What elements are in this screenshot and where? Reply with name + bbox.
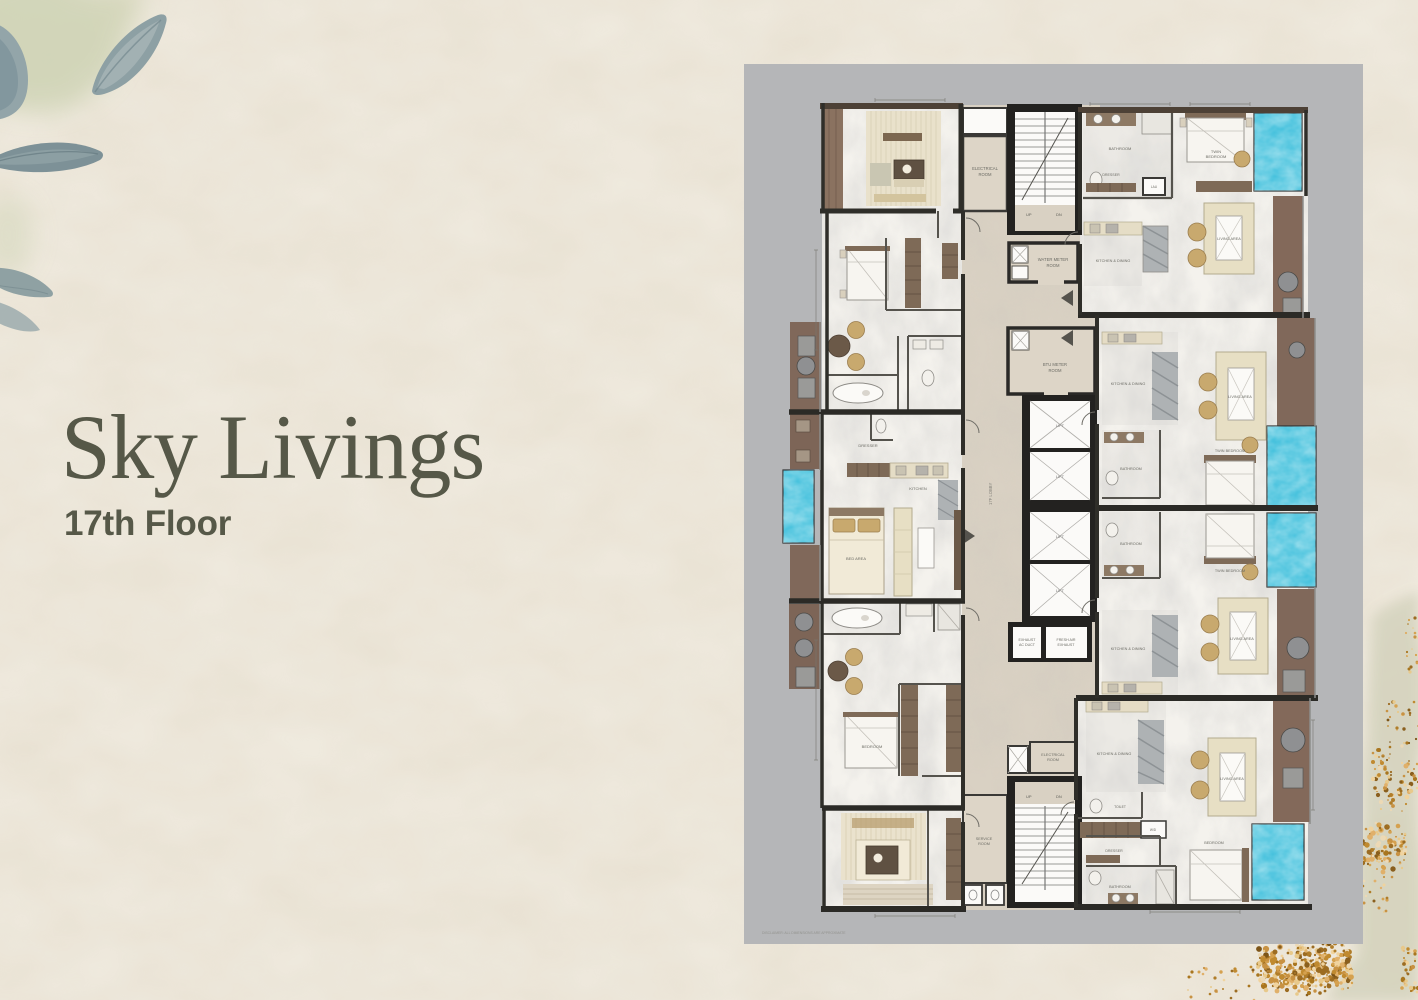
svg-text:KITCHEN & DINING: KITCHEN & DINING [1097, 752, 1132, 756]
svg-text:ELECTRICAL: ELECTRICAL [1041, 753, 1064, 757]
svg-text:BATHROOM: BATHROOM [1120, 542, 1142, 546]
svg-text:SERVICE: SERVICE [976, 837, 993, 841]
svg-text:17F LOBBY: 17F LOBBY [988, 482, 993, 505]
svg-text:ROOM: ROOM [1048, 368, 1062, 373]
svg-text:BTU METER: BTU METER [1043, 362, 1067, 367]
svg-text:LIVING AREA: LIVING AREA [1217, 237, 1241, 241]
svg-text:DRESSER: DRESSER [858, 443, 877, 448]
svg-text:BEDROOM: BEDROOM [862, 744, 883, 749]
svg-text:BED AREA: BED AREA [846, 556, 866, 561]
svg-text:LIFT: LIFT [1056, 474, 1065, 479]
svg-text:TWIN BEDROOM: TWIN BEDROOM [1215, 569, 1245, 573]
svg-text:ROOM: ROOM [1047, 758, 1059, 762]
svg-text:BEDROOM: BEDROOM [1206, 154, 1227, 159]
svg-text:KITCHEN: KITCHEN [909, 486, 927, 491]
svg-text:LIVING AREA: LIVING AREA [1228, 395, 1252, 399]
svg-text:LIVING AREA: LIVING AREA [1220, 777, 1244, 781]
svg-text:DRESSER: DRESSER [1102, 173, 1120, 177]
svg-text:DRESSER: DRESSER [1105, 849, 1123, 853]
svg-text:WATER METER: WATER METER [1038, 257, 1068, 262]
svg-text:BATHROOM: BATHROOM [1109, 885, 1131, 889]
svg-text:UP: UP [1026, 794, 1032, 799]
svg-text:ROOM: ROOM [978, 172, 992, 177]
svg-text:ROOM: ROOM [1046, 263, 1060, 268]
svg-text:EXHAUST: EXHAUST [1019, 638, 1037, 642]
svg-text:EXHAUST: EXHAUST [1058, 643, 1076, 647]
svg-text:TOILET: TOILET [1114, 805, 1126, 809]
svg-text:ELECTRICAL: ELECTRICAL [972, 166, 999, 171]
svg-text:ROOM: ROOM [978, 842, 990, 846]
svg-text:LIVING AREA: LIVING AREA [1230, 637, 1254, 641]
svg-text:W/D: W/D [1150, 828, 1157, 832]
svg-text:LIFT: LIFT [1056, 534, 1065, 539]
svg-text:BATHROOM: BATHROOM [1120, 467, 1142, 471]
svg-text:LAU: LAU [1151, 185, 1158, 189]
svg-text:DISCLAIMER: ALL DIMENSIONS ARE: DISCLAIMER: ALL DIMENSIONS ARE APPROXIMA… [762, 931, 846, 935]
svg-text:BATHROOM: BATHROOM [1109, 146, 1132, 151]
svg-text:BEDROOM: BEDROOM [1204, 841, 1224, 845]
svg-text:AC DUCT: AC DUCT [1019, 643, 1036, 647]
svg-text:KITCHEN & DINING: KITCHEN & DINING [1096, 259, 1131, 263]
svg-text:DN: DN [1056, 794, 1062, 799]
svg-text:TWIN BEDROOM: TWIN BEDROOM [1215, 449, 1245, 453]
svg-text:LIFT: LIFT [1056, 588, 1065, 593]
svg-text:DN: DN [1056, 212, 1062, 217]
svg-text:KITCHEN & DINING: KITCHEN & DINING [1111, 647, 1146, 651]
svg-text:KITCHEN & DINING: KITCHEN & DINING [1111, 382, 1146, 386]
svg-text:UP: UP [1026, 212, 1032, 217]
svg-text:LIFT: LIFT [1056, 423, 1065, 428]
svg-text:FRESH AIR: FRESH AIR [1057, 638, 1076, 642]
